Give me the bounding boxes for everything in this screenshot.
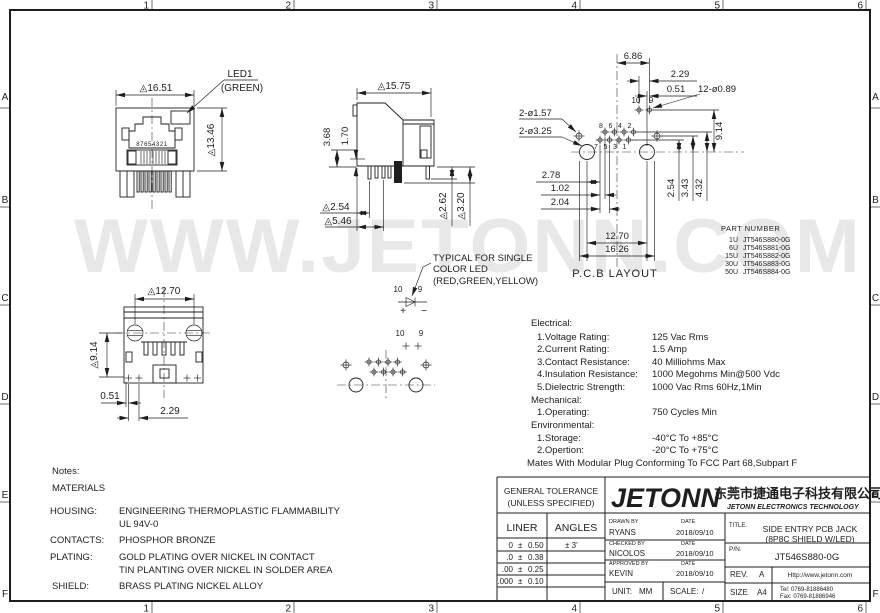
drawing-title-line2: (8P8C SHIELD W/LED) — [765, 534, 854, 544]
notes-block: Notes: MATERIALS HOUSING: ENGINEERING TH… — [50, 466, 341, 592]
note-value: UL 94V-0 — [119, 519, 158, 530]
date-label: DATE — [681, 541, 696, 547]
pcb-caption: P.C.B LAYOUT — [572, 268, 658, 280]
tol-value: 0.38 — [528, 553, 544, 562]
tol-digits: 0 — [509, 541, 514, 550]
spec-label: 2.Current Rating: — [537, 344, 609, 355]
company-tel: Tel: 0769-81886480 — [780, 587, 834, 593]
rev-value: A — [759, 570, 765, 579]
led-minus-sign: − — [421, 306, 427, 317]
drawn-by-label: DRAWN BY — [609, 519, 639, 525]
part-plating: 6U — [729, 245, 738, 252]
pn-value: JT546S880-0G — [775, 552, 839, 563]
drawing-sheet: WWW.JETONN.COM 1 2 3 4 5 6 1 2 3 4 5 6 A… — [0, 0, 880, 613]
dim-pcb-432: 4.32 — [694, 179, 705, 198]
pcb-pin-label: 6 — [609, 123, 613, 130]
zone-row-label: A — [2, 92, 9, 103]
company-web: Http://www.jetonn.com — [788, 572, 853, 579]
part-pn: JT546S881-0G — [743, 245, 790, 252]
pcb-pin-label: 8 — [599, 123, 603, 130]
checked-by-name: NICOLOS — [609, 549, 645, 558]
notes-title: Notes: — [52, 466, 79, 477]
spec-label: 1.Operating: — [537, 407, 589, 418]
tol-value: 0.10 — [528, 577, 544, 586]
pcb-pin-label: 1 — [623, 144, 627, 151]
spec-value: 750 Cycles Min — [652, 407, 717, 418]
zone-row-label: C — [872, 293, 879, 304]
led-foot-pin-label: 10 — [396, 329, 405, 338]
pcb-pin-labels: 8 6 4 2 7 5 3 1 10 9 — [594, 96, 654, 151]
unit-label: UNIT: — [612, 587, 632, 596]
spec-label: 3.Contact Resistance: — [537, 357, 630, 368]
front-view-contacts — [141, 151, 165, 164]
note-value: PHOSPHOR BRONZE — [119, 535, 216, 546]
dim-pcb-278: 2.78 — [542, 170, 561, 181]
specs-footer: Mates With Modular Plug Conforming To FC… — [527, 458, 797, 469]
scale-label: SCALE: — [670, 587, 698, 596]
dim-pcb-254: 2.54 — [666, 179, 677, 198]
dim-side-262: ◬2.62 — [438, 192, 449, 220]
tol-angle: ± 3' — [565, 541, 578, 550]
spec-label: 2.Opertion: — [537, 445, 584, 456]
signature-rows: DRAWN BY DATE RYANS 2018/09/10 CHECKED B… — [609, 519, 714, 596]
drawn-by-name: RYANS — [609, 528, 636, 537]
zone-row-label: F — [2, 589, 8, 600]
part-plating: 30U — [725, 261, 738, 268]
company-name-en: JETONN ELECTRONICS TECHNOLOGY — [727, 504, 860, 511]
zone-col-label: 3 — [428, 1, 434, 12]
company-area: JETONN 东莞市捷通电子科技有限公司 JETONN ELECTRONICS … — [611, 483, 880, 513]
zone-col-label: 2 — [285, 1, 291, 12]
led-foot-pin-label: 9 — [419, 329, 424, 338]
zone-row-label: A — [872, 92, 879, 103]
title-pn-area: TITLE. SIDE ENTRY PCB JACK (8P8C SHIELD … — [729, 523, 858, 600]
tol-digits: .000 — [497, 577, 513, 586]
spec-value: 40 Milliohms Max — [652, 357, 726, 368]
size-value: A4 — [757, 588, 767, 597]
part-plating: 15U — [725, 253, 738, 260]
date-label: DATE — [681, 561, 696, 567]
bottom-view: ◬12.70 ◬9.14 0.51 2.29 — [89, 286, 211, 421]
tolerance-col-angles: ANGLES — [555, 522, 598, 534]
tol-pm: ± — [518, 553, 523, 562]
dim-side-width: ◬15.75 — [378, 81, 411, 92]
front-view-legs — [120, 171, 190, 197]
unit-value: MM — [639, 587, 653, 596]
checked-date: 2018/09/10 — [676, 549, 714, 558]
tol-value: 0.25 — [528, 565, 544, 574]
dim-side-170: 1.70 — [340, 127, 351, 146]
drawing-title-line1: SIDE ENTRY PCB JACK — [763, 524, 858, 534]
dim-bottom-051: 0.51 — [100, 391, 120, 402]
zone-col-label: 5 — [714, 604, 720, 613]
led-note-line2: COLOR LED — [433, 264, 488, 275]
dim-pcb-102: 1.02 — [551, 183, 570, 194]
drawn-date: 2018/09/10 — [676, 528, 714, 537]
note-label: HOUSING: — [50, 506, 97, 517]
note-value: ENGINEERING THERMOPLASTIC FLAMMABILITY — [119, 506, 341, 517]
dim-bottom-height: ◬9.14 — [89, 341, 100, 369]
company-name-cn: 东莞市捷通电子科技有限公司 — [714, 486, 880, 501]
specs-section-title: Environmental: — [531, 420, 594, 431]
zone-row-label: B — [2, 195, 9, 206]
zone-row-label: B — [872, 195, 879, 206]
zone-row-label: E — [2, 490, 9, 501]
checked-by-label: CHECKED BY — [609, 541, 645, 547]
zone-col-label: 1 — [143, 604, 149, 613]
dim-side-546: ◬5.46 — [324, 216, 352, 227]
drawing-canvas: WWW.JETONN.COM 1 2 3 4 5 6 1 2 3 4 5 6 A… — [0, 0, 880, 613]
scale-value: / — [702, 587, 705, 596]
dim-pcb-204: 2.04 — [551, 197, 570, 208]
tol-value: 0.50 — [528, 541, 544, 550]
zone-col-label: 3 — [428, 604, 434, 613]
spec-value: 1.5 Amp — [652, 344, 687, 355]
approved-date: 2018/09/10 — [676, 569, 714, 578]
specs-section-title: Mechanical: — [531, 395, 582, 406]
led-note-line3: (RED,GREEN,YELLOW) — [433, 276, 538, 287]
zone-col-label: 5 — [714, 1, 720, 12]
spec-label: 4.Insulation Resistance: — [537, 369, 638, 380]
tolerance-col-liner: LINER — [507, 522, 538, 534]
note-label: PLATING: — [50, 552, 93, 563]
pcb-pin-label: 2 — [628, 123, 632, 130]
spec-value: -40°C To +85°C — [652, 433, 718, 444]
dim-pcb-051: 0.51 — [667, 84, 686, 95]
title-label: TITLE. — [729, 523, 747, 529]
pcb-pin-label: 5 — [604, 144, 608, 151]
dim-side-320: ◬3.20 — [456, 192, 467, 220]
zone-row-label: D — [1, 392, 8, 403]
tol-digits: .0 — [506, 553, 513, 562]
approved-by-name: KEVIN — [609, 569, 633, 578]
part-plating: 1U — [729, 237, 738, 244]
dim-pcb-686: 6.86 — [624, 51, 643, 62]
part-number-table: PART NUMBER 1U JT546S880-0G 6U JT546S881… — [721, 224, 790, 276]
spec-value: 1000 Megohms Min@500 Vdc — [652, 369, 780, 380]
dim-pcb-325: 2-ø3.25 — [519, 126, 552, 137]
led-plus-sign: + — [400, 306, 406, 317]
bottom-view-outline — [124, 307, 203, 383]
pn-label: P/N. — [729, 546, 742, 553]
zone-col-label: 6 — [857, 604, 863, 613]
company-fax: Fax: 0769-81886946 — [780, 594, 836, 600]
dim-pcb-343: 3.43 — [680, 179, 691, 198]
tol-digits: .00 — [502, 565, 514, 574]
zone-row-label: F — [872, 589, 878, 600]
rev-label: REV. — [730, 570, 748, 579]
led-note-line1: TYPICAL FOR SINGLE — [433, 253, 532, 264]
dim-front-width: ◬16.51 — [140, 83, 173, 94]
dim-bottom-229: 2.29 — [160, 406, 180, 417]
notes-subtitle: MATERIALS — [52, 483, 105, 494]
dim-pcb-229: 2.29 — [671, 69, 690, 80]
dim-pcb-914: 9.14 — [714, 122, 725, 141]
dim-side-254: ◬2.54 — [322, 202, 350, 213]
dim-bottom-width: ◬12.70 — [148, 286, 181, 297]
dim-pcb-1270: 12.70 — [605, 231, 629, 242]
spec-value: 1000 Vac Rms 60Hz,1Min — [652, 382, 762, 393]
dim-front-height: ◬13.46 — [206, 123, 217, 156]
front-view-outline — [116, 108, 194, 171]
part-pn: JT546S884-0G — [743, 269, 790, 276]
zone-col-label: 4 — [571, 604, 577, 613]
note-label: CONTACTS: — [50, 535, 104, 546]
led-diode-pin: 9 — [418, 285, 423, 294]
pcb-pin-label: 4 — [618, 123, 622, 130]
specs-section-title: Electrical: — [531, 318, 572, 329]
zone-col-label: 4 — [571, 1, 577, 12]
note-value: GOLD PLATING OVER NICKEL IN CONTACT — [119, 552, 315, 563]
date-label: DATE — [681, 519, 696, 525]
spec-value: 125 Vac Rms — [652, 332, 709, 343]
pcb-pin-label: 3 — [613, 144, 617, 151]
dim-side-368: 3.68 — [322, 128, 333, 147]
spec-value: -20°C To +75°C — [652, 445, 718, 456]
front-view: 87654321 ◬16.51 ◬13.46 LED1 (GREEN) — [116, 69, 263, 210]
dim-pcb-157: 2-ø1.57 — [519, 108, 552, 119]
front-pin-numbers: 87654321 — [136, 142, 168, 148]
note-value: BRASS PLATING NICKEL ALLOY — [119, 581, 264, 592]
tol-pm: ± — [518, 541, 523, 550]
tol-pm: ± — [518, 565, 523, 574]
spec-label: 1.Storage: — [537, 433, 581, 444]
note-label: SHIELD: — [52, 581, 89, 592]
tol-pm: ± — [518, 577, 523, 586]
part-pn: JT546S883-0G — [743, 261, 790, 268]
part-pn: JT546S882-0G — [743, 253, 790, 260]
zone-col-label: 2 — [285, 604, 291, 613]
size-label: SIZE — [730, 588, 748, 597]
side-view-outline — [353, 103, 434, 183]
dim-pcb-1626: 16.26 — [605, 244, 629, 255]
spec-label: 1.Voltage Rating: — [537, 332, 609, 343]
led-diode-pin: 10 — [394, 285, 403, 294]
part-table-title: PART NUMBER — [721, 224, 780, 233]
led-footprint — [337, 343, 435, 401]
front-led-color: (GREEN) — [221, 83, 263, 94]
title-block: GENERAL TOLERANCE (UNLESS SPECIFIED) LIN… — [497, 477, 880, 601]
note-value: TIN PLANTING OVER NICKEL IN SOLDER AREA — [119, 565, 333, 576]
spec-label: 5.Dielectric Strength: — [537, 382, 625, 393]
zone-col-label: 6 — [857, 1, 863, 12]
tolerance-title-line1: GENERAL TOLERANCE — [504, 486, 599, 496]
company-logo: JETONN — [611, 483, 721, 513]
specs-block: Electrical: 1.Voltage Rating: 125 Vac Rm… — [527, 318, 797, 469]
dim-pcb-holes: 12-ø0.89 — [698, 84, 736, 95]
pcb-pin-label: 7 — [594, 144, 598, 151]
part-pn: JT546S880-0G — [743, 237, 790, 244]
part-plating: 50U — [725, 269, 738, 276]
zone-row-label: C — [1, 293, 8, 304]
zone-col-label: 1 — [143, 1, 149, 12]
pcb-pin-label: 10 — [632, 96, 641, 105]
zone-row-label: D — [872, 392, 879, 403]
tolerance-title-line2: (UNLESS SPECIFIED) — [508, 498, 595, 508]
front-led-label: LED1 — [227, 69, 252, 80]
approved-by-label: APPROVED BY — [609, 561, 649, 567]
